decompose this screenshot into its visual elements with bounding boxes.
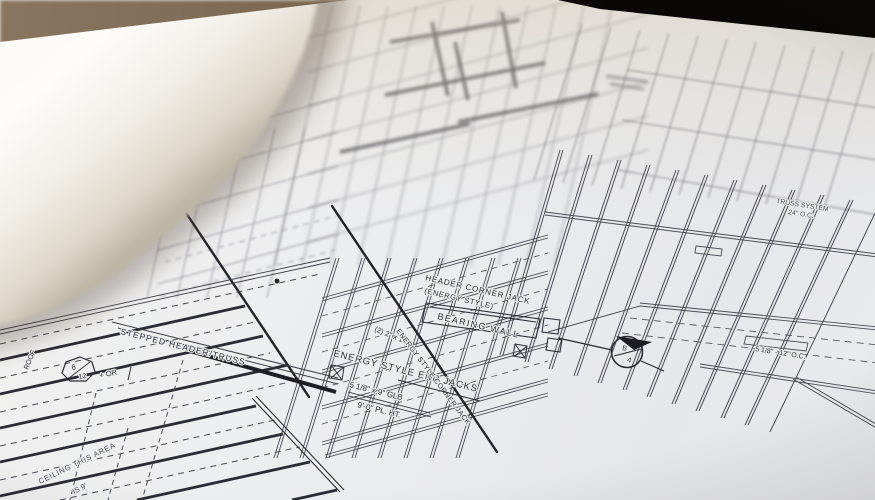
label-pitch-numerator: 6 bbox=[71, 362, 77, 372]
label-truss-system-2: 24" O.C. bbox=[788, 209, 815, 220]
right-truss-field bbox=[500, 150, 875, 432]
label-pitch-denominator: 12 bbox=[78, 373, 87, 381]
label-roof: ROOF bbox=[23, 349, 37, 370]
label-section-number: 4 bbox=[627, 357, 632, 365]
label-pitch-suffix: + OR bbox=[99, 367, 119, 380]
blurred-framing-top-right bbox=[534, 24, 875, 215]
label-section-letter: B bbox=[622, 345, 628, 353]
section-marker bbox=[558, 336, 664, 371]
illegible-note bbox=[606, 76, 648, 89]
blueprint-photo: HEADER CORNER JACK (ENERGY STYLE) BEARIN… bbox=[0, 0, 875, 500]
blurred-headers-top bbox=[340, 12, 598, 152]
